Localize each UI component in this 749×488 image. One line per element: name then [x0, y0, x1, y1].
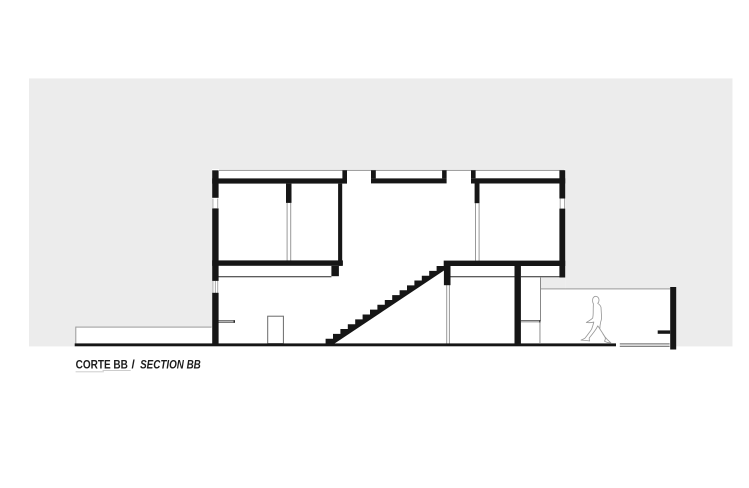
svg-text:CORTE BB: CORTE BB	[76, 357, 128, 371]
svg-text:SECTION BB: SECTION BB	[140, 357, 201, 371]
